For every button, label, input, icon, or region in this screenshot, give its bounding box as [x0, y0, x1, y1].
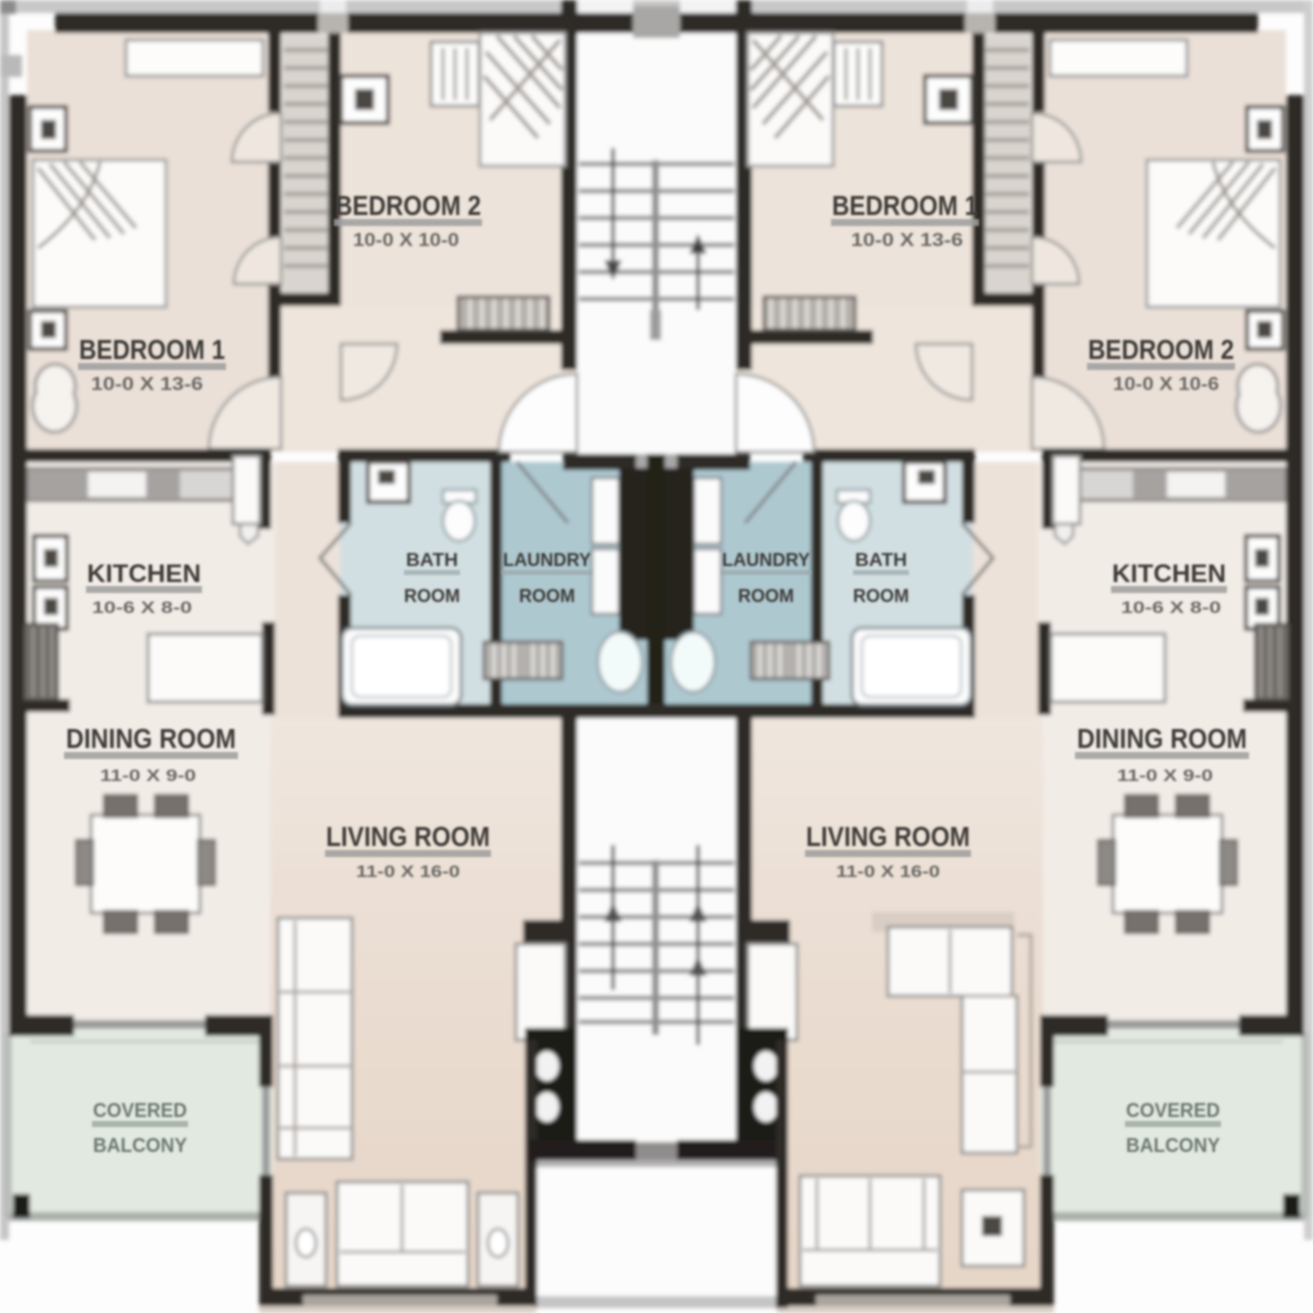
svg-text:BEDROOM 1: BEDROOM 1 — [832, 190, 978, 221]
svg-text:10-6 X 8-0: 10-6 X 8-0 — [92, 598, 192, 617]
svg-text:BALCONY: BALCONY — [1126, 1135, 1221, 1157]
svg-text:LAUNDRY: LAUNDRY — [503, 550, 591, 570]
svg-text:ROOM: ROOM — [404, 586, 460, 606]
svg-text:KITCHEN: KITCHEN — [87, 560, 201, 588]
svg-text:BATH: BATH — [855, 550, 907, 570]
svg-text:10-0 X 10-6: 10-0 X 10-6 — [1113, 374, 1219, 394]
svg-text:BATH: BATH — [406, 550, 458, 570]
svg-text:10-0 X 13-6: 10-0 X 13-6 — [91, 374, 203, 394]
svg-text:10-6 X 8-0: 10-6 X 8-0 — [1121, 598, 1221, 617]
svg-text:10-0 X 13-6: 10-0 X 13-6 — [851, 230, 963, 250]
svg-text:11-0 X 9-0: 11-0 X 9-0 — [100, 766, 196, 785]
svg-text:11-0 X 16-0: 11-0 X 16-0 — [356, 862, 460, 881]
svg-text:KITCHEN: KITCHEN — [1112, 560, 1226, 588]
svg-text:COVERED: COVERED — [1126, 1100, 1220, 1122]
svg-text:ROOM: ROOM — [519, 586, 575, 606]
svg-text:11-0 X 16-0: 11-0 X 16-0 — [836, 862, 940, 881]
svg-text:10-0 X 10-0: 10-0 X 10-0 — [353, 230, 459, 250]
svg-text:11-0 X 9-0: 11-0 X 9-0 — [1117, 766, 1213, 785]
svg-text:ROOM: ROOM — [853, 586, 909, 606]
svg-text:ROOM: ROOM — [738, 586, 794, 606]
svg-text:LIVING ROOM: LIVING ROOM — [806, 821, 970, 852]
svg-text:BALCONY: BALCONY — [93, 1135, 188, 1157]
svg-text:BEDROOM 2: BEDROOM 2 — [335, 190, 481, 221]
svg-text:LIVING ROOM: LIVING ROOM — [326, 821, 490, 852]
svg-text:LAUNDRY: LAUNDRY — [722, 550, 810, 570]
svg-text:DINING ROOM: DINING ROOM — [1077, 723, 1247, 754]
svg-text:COVERED: COVERED — [93, 1100, 187, 1122]
svg-text:BEDROOM 1: BEDROOM 1 — [79, 334, 225, 365]
svg-text:DINING ROOM: DINING ROOM — [66, 723, 236, 754]
svg-text:BEDROOM 2: BEDROOM 2 — [1088, 334, 1234, 365]
